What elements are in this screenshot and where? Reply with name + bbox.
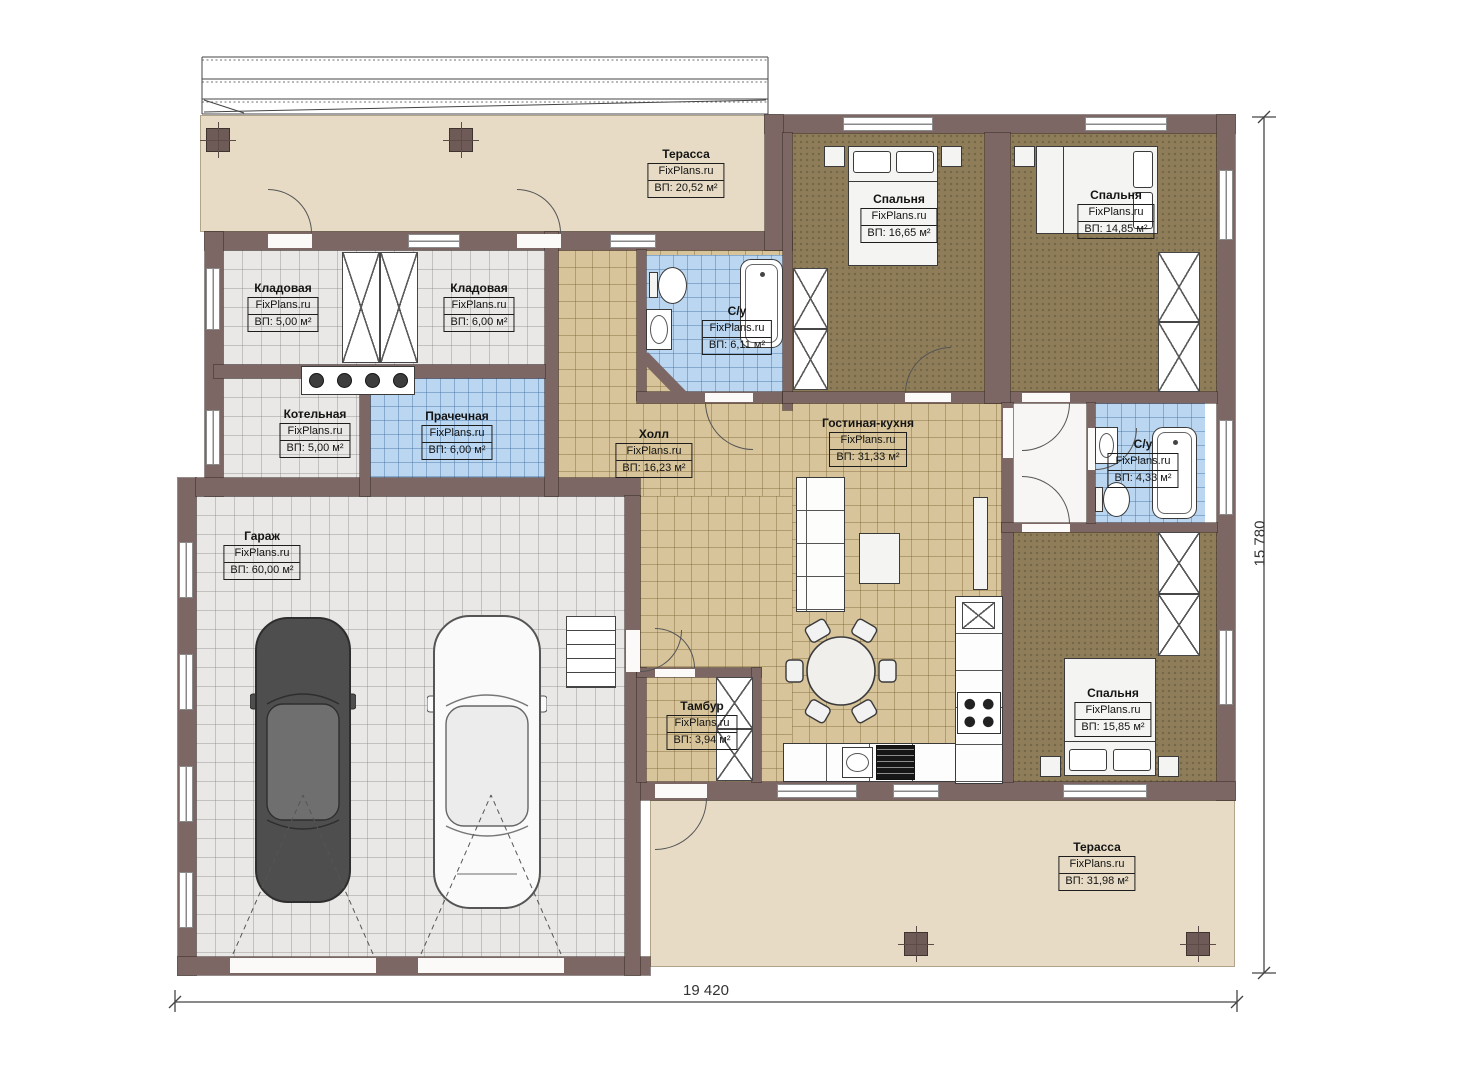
room-area: ВП: 4,33 м²: [1108, 471, 1177, 487]
room-name: Кладовая: [443, 281, 514, 295]
nightstand: [824, 146, 845, 167]
wall: [783, 133, 792, 410]
wardrobe: [793, 268, 828, 329]
room-brand: FixPlans.ru: [1078, 205, 1153, 222]
tv-stand: [973, 497, 988, 590]
room-brand: FixPlans.ru: [667, 716, 736, 733]
door-opening: [655, 784, 707, 798]
wall: [637, 668, 646, 782]
room-brand: FixPlans.ru: [830, 433, 905, 450]
car: [427, 612, 547, 912]
floor-plan: Терасса FixPlans.ruВП: 20,52 м² Спальня …: [0, 0, 1473, 1080]
wall: [752, 668, 761, 782]
toilet-tank: [649, 272, 658, 298]
room-area: ВП: 31,98 м²: [1059, 874, 1134, 890]
wardrobe: [342, 252, 380, 363]
door-opening: [1088, 428, 1095, 470]
wardrobe: [1158, 532, 1200, 594]
room-brand: FixPlans.ru: [422, 426, 491, 443]
column: [904, 932, 928, 956]
terrace-bottom-floor: [650, 800, 1235, 967]
toilet-icon: [658, 267, 687, 304]
pillow: [1069, 749, 1107, 771]
pillow: [1133, 151, 1153, 188]
room-area: ВП: 20,52 м²: [648, 181, 723, 197]
room-label-bedroom-3: Спальня FixPlans.ruВП: 15,85 м²: [1074, 686, 1151, 737]
window: [1219, 170, 1233, 240]
wardrobe: [1158, 594, 1200, 656]
column: [1186, 932, 1210, 956]
wall: [985, 133, 1010, 403]
room-brand: FixPlans.ru: [248, 298, 317, 315]
window: [206, 410, 220, 465]
room-brand: FixPlans.ru: [1075, 703, 1150, 720]
window: [1063, 784, 1147, 798]
room-name: Прачечная: [421, 409, 492, 423]
boiler-unit: [301, 366, 415, 395]
room-brand: FixPlans.ru: [280, 424, 349, 441]
column: [449, 128, 473, 152]
room-label-bedroom-2: Спальня FixPlans.ruВП: 14,85 м²: [1077, 188, 1154, 239]
wall: [196, 478, 640, 496]
door-opening: [905, 393, 951, 402]
window: [179, 542, 193, 598]
room-label-storage-2: Кладовая FixPlans.ruВП: 6,00 м²: [443, 281, 514, 332]
window: [179, 654, 193, 710]
wall: [1002, 403, 1013, 782]
window: [610, 234, 656, 248]
room-name: Гараж: [223, 529, 300, 543]
room-label-terrace-top: Терасса FixPlans.ruВП: 20,52 м²: [647, 147, 724, 198]
wardrobe: [380, 252, 418, 363]
room-name: Котельная: [279, 407, 350, 421]
nightstand: [941, 146, 962, 167]
room-label-garage: Гараж FixPlans.ruВП: 60,00 м²: [223, 529, 300, 580]
door-opening: [1022, 393, 1070, 402]
room-brand: FixPlans.ru: [648, 164, 723, 181]
car: [250, 614, 356, 906]
column: [206, 128, 230, 152]
window: [777, 784, 857, 798]
blanket-line: [849, 181, 937, 182]
kitchen-sink-icon: [842, 747, 873, 778]
window: [179, 872, 193, 928]
sink-icon: [646, 309, 672, 350]
nightstand: [1158, 756, 1179, 777]
room-area: ВП: 16,65 м²: [861, 226, 936, 242]
room-name: Холл: [615, 427, 692, 441]
room-area: ВП: 5,00 м²: [248, 315, 317, 331]
wall: [637, 250, 646, 400]
door-opening: [705, 393, 753, 402]
dining-table-set: [778, 608, 904, 734]
window: [1219, 420, 1233, 515]
room-label-vestibule: Тамбур FixPlans.ruВП: 3,94 м²: [666, 699, 737, 750]
room-brand: FixPlans.ru: [1108, 454, 1177, 471]
room-brand: FixPlans.ru: [224, 546, 299, 563]
garage-door-opening: [230, 958, 376, 973]
dimension-width: 19 420: [656, 982, 756, 999]
room-area: ВП: 6,00 м²: [444, 315, 513, 331]
door-opening: [268, 234, 312, 248]
door-opening: [626, 630, 640, 672]
room-area: ВП: 15,85 м²: [1075, 720, 1150, 736]
room-name: Терасса: [647, 147, 724, 161]
room-label-terrace-bottom: Терасса FixPlans.ruВП: 31,98 м²: [1058, 840, 1135, 891]
room-name: С/у: [1107, 437, 1178, 451]
room-brand: FixPlans.ru: [703, 321, 771, 338]
window: [1219, 630, 1233, 705]
sofa: [796, 477, 845, 612]
room-area: ВП: 3,94 м²: [667, 733, 736, 749]
blanket-line: [1065, 741, 1155, 742]
room-name: Тамбур: [666, 699, 737, 713]
room-area: ВП: 6,00 м²: [422, 443, 491, 459]
room-brand: FixPlans.ru: [1059, 857, 1134, 874]
stove-icon: [957, 692, 1001, 734]
appliance-icon: [876, 745, 915, 780]
room-label-bathroom-1: С/у FixPlans.ruВП: 6,11 м²: [702, 304, 772, 355]
window: [843, 117, 933, 131]
room-area: ВП: 14,85 м²: [1078, 222, 1153, 238]
wardrobe: [793, 329, 828, 390]
room-label-living-kitchen: Гостиная-кухня FixPlans.ruВП: 31,33 м²: [822, 416, 914, 467]
wall: [360, 378, 370, 496]
toilet-tank: [1095, 487, 1103, 512]
wardrobe: [1158, 252, 1200, 322]
room-name: Кладовая: [247, 281, 318, 295]
room-brand: FixPlans.ru: [861, 209, 936, 226]
door-opening: [1003, 408, 1013, 458]
room-label-hall: Холл FixPlans.ruВП: 16,23 м²: [615, 427, 692, 478]
pillow: [853, 151, 891, 173]
room-label-laundry: Прачечная FixPlans.ruВП: 6,00 м²: [421, 409, 492, 460]
pillow: [1113, 749, 1151, 771]
room-area: ВП: 16,23 м²: [616, 461, 691, 477]
nightstand: [1014, 146, 1035, 167]
room-brand: FixPlans.ru: [444, 298, 513, 315]
room-area: ВП: 5,00 м²: [280, 441, 349, 457]
room-area: ВП: 6,11 м²: [703, 338, 771, 354]
room-name: Спальня: [860, 192, 937, 206]
window: [408, 234, 460, 248]
room-area: ВП: 31,33 м²: [830, 450, 905, 466]
room-brand: FixPlans.ru: [616, 444, 691, 461]
page: { "plan": { "brand": "FixPlans.ru", "dim…: [0, 0, 1473, 1080]
door-opening: [655, 669, 695, 677]
room-label-storage-1: Кладовая FixPlans.ruВП: 5,00 м²: [247, 281, 318, 332]
door-opening: [517, 234, 561, 248]
room-name: Гостиная-кухня: [822, 416, 914, 430]
wardrobe: [1158, 322, 1200, 392]
room-name: Терасса: [1058, 840, 1135, 854]
window: [1085, 117, 1167, 131]
window: [179, 766, 193, 822]
window: [893, 784, 939, 798]
blanket-line: [1063, 147, 1064, 233]
room-label-boiler: Котельная FixPlans.ruВП: 5,00 м²: [279, 407, 350, 458]
nightstand: [1040, 756, 1061, 777]
room-label-bedroom-1: Спальня FixPlans.ruВП: 16,65 м²: [860, 192, 937, 243]
room-name: Спальня: [1077, 188, 1154, 202]
kitchen-sink-icon: [962, 602, 995, 629]
room-area: ВП: 60,00 м²: [224, 563, 299, 579]
window: [206, 268, 220, 330]
pillow: [896, 151, 934, 173]
room-name: Спальня: [1074, 686, 1151, 700]
wall: [765, 115, 783, 250]
door-opening: [1022, 524, 1070, 532]
room-name: С/у: [702, 304, 772, 318]
dimension-height: 15 780: [1252, 508, 1269, 580]
room-label-bathroom-2: С/у FixPlans.ruВП: 4,33 м²: [1107, 437, 1178, 488]
coffee-table: [859, 533, 900, 584]
wall: [545, 232, 558, 496]
stairs: [566, 616, 616, 688]
garage-door-opening: [418, 958, 564, 973]
